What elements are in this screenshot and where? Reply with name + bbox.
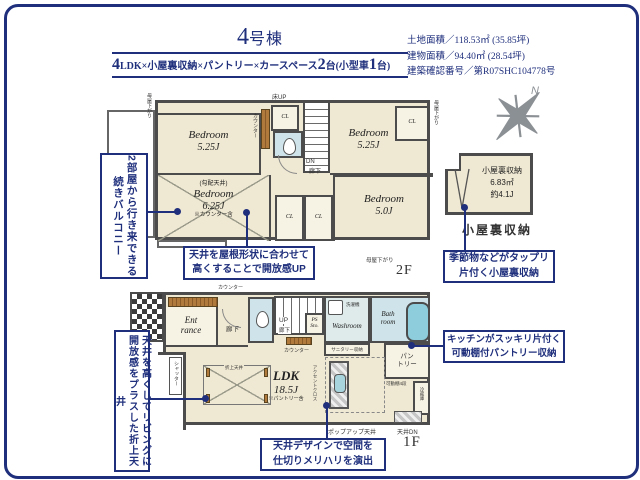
building-area: 建物面積／94.40㎡ (28.54坪) — [407, 50, 555, 66]
moya-sagari-se: 母屋下がり — [366, 256, 394, 264]
bedroom-se-size: 5.0J — [335, 206, 433, 218]
compass-north-label: N — [531, 85, 539, 97]
connector-coffered — [150, 398, 206, 400]
header: 4号棟 4LDK×小屋裏収納×パントリー×カースペース2台(小型車1台) — [112, 24, 408, 78]
coffered-ceiling-label: 折上天井 — [224, 365, 244, 371]
kitchen-counter — [329, 361, 349, 409]
callout-coffered-line2: 開放感をプラスした折上天井 — [113, 332, 139, 470]
stairs-counter — [286, 337, 312, 345]
property-info: 土地面積／118.53㎡ (35.85坪) 建物面積／94.40㎡ (28.54… — [407, 34, 555, 81]
stairs-1f-hall-label: 廊下 — [278, 326, 291, 334]
bedroom-nw-name: Bedroom — [158, 129, 259, 142]
pantry-shelf-label: 可動棚4段 — [386, 381, 407, 387]
door-arc-2f — [278, 155, 297, 174]
bathtub-icon — [406, 302, 430, 342]
callout-balcony-line2: 続きバルコニー — [110, 176, 124, 257]
callout-design-line2: 仕切りメリハリを演出 — [262, 455, 384, 470]
connector-attic-dot — [461, 204, 468, 211]
callout-ceiling-2f: 天井を屋根形状に合わせて 高くすることで開放感UP — [183, 246, 315, 280]
connector-design — [326, 406, 328, 438]
toilet-1f-bowl-icon — [256, 311, 269, 328]
kitchen-sink-icon — [334, 374, 346, 393]
washing-machine-icon — [328, 300, 343, 315]
compass-icon: N — [486, 82, 550, 148]
entrance-label-2: rance — [166, 325, 216, 335]
floor2-tag: 2F — [396, 263, 413, 279]
washer-label: 洗濯機 — [346, 302, 360, 308]
pantry: パン トリー — [384, 343, 430, 379]
entrance-label-1: Ent — [166, 315, 216, 325]
bathroom-label-1: Bath — [372, 310, 404, 318]
callout-ceiling-2f-line2: 高くすることで開放感UP — [185, 263, 313, 278]
callout-pantry-line2: 可動棚付パントリー収納 — [445, 347, 563, 361]
coffered-post — [264, 394, 268, 403]
floor1-tag: 1F — [403, 434, 421, 451]
callout-coffered: 天井を高くしてリビングに 開放感をプラスした折上天井 — [114, 330, 150, 472]
bedroom-se-name: Bedroom — [335, 193, 433, 206]
bedroom-sw-name: Bedroom — [158, 188, 269, 201]
callout-design: 天井デザインで空間を 仕切りメリハリを演出 — [260, 438, 386, 471]
coffered-post — [206, 368, 210, 377]
bedroom-nw: Bedroom 5.25J — [158, 113, 261, 175]
coffered-ceiling-box: 折上天井 — [203, 365, 271, 405]
page-title: 4号棟 — [112, 24, 408, 54]
connector-balcony-dot — [174, 208, 181, 215]
confirmation-number: 建築確認番号／第R07SHC104778号 — [407, 65, 555, 81]
callout-balcony-line1: 2部屋から行き来できる — [124, 155, 138, 277]
shutter-box: シャッター — [169, 357, 182, 395]
bedroom-ne-size: 5.25J — [330, 140, 407, 152]
attic-caption: 小屋裏収納 — [462, 221, 532, 238]
attic-area: 6.83㎡ — [474, 177, 530, 189]
pantry-label-2: トリー — [386, 361, 428, 369]
stairs-2f-dn-label: DN — [305, 159, 316, 165]
closet-2f-center: CL — [271, 105, 299, 131]
connector-ceiling-2f-dot — [243, 209, 250, 216]
sanitary-storage: サニタリー収納 — [324, 343, 370, 356]
connector-ceiling-2f — [246, 213, 248, 246]
toilet-2f — [273, 131, 303, 158]
callout-attic-line1: 季節物などがタップリ — [445, 252, 553, 267]
building-number: 4 — [237, 24, 249, 50]
callout-pantry: キッチンがスッキリ片付く 可動棚付パントリー収納 — [443, 330, 565, 363]
sto-label: Sto. — [307, 323, 322, 329]
bedroom-sw-ceiling-note: (勾配天井) — [158, 181, 269, 188]
connector-design-dot — [323, 402, 330, 409]
attic-plan: 小屋裏収納 6.83㎡ 約4.1J — [445, 153, 533, 215]
fridge-nook: 冷蔵庫 — [413, 381, 430, 415]
connector-coffered-dot — [202, 395, 209, 402]
back-door-step — [394, 411, 422, 423]
washroom: 洗濯機 Washroom — [324, 296, 370, 343]
callout-ceiling-2f-line1: 天井を屋根形状に合わせて — [185, 249, 313, 264]
bedroom-nw-size: 5.25J — [158, 142, 259, 154]
attic-name: 小屋裏収納 — [474, 165, 530, 177]
callout-design-line1: 天井デザインで空間を — [262, 440, 384, 455]
land-area: 土地面積／118.53㎡ (35.85坪) — [407, 34, 555, 50]
entrance: Ent rance — [166, 307, 218, 347]
connector-pantry-dot — [408, 342, 415, 349]
bathroom: Bath room — [370, 296, 430, 343]
bathroom-label-2: room — [372, 318, 404, 326]
attic-size: 約4.1J — [474, 189, 530, 201]
bedroom-se: Bedroom 5.0J — [333, 175, 433, 241]
closet-2f-center-label: CL — [273, 114, 297, 121]
moya-sagari-ne: 母屋下がり — [433, 100, 440, 125]
floorplan-flyer: 4号棟 4LDK×小屋裏収納×パントリー×カースペース2台(小型車1台) 土地面… — [0, 0, 640, 480]
callout-pantry-line1: キッチンがスッキリ片付く — [445, 333, 563, 347]
popup-ceiling-caption: ポップアップ天井 — [328, 427, 376, 436]
floor-up-label: 床UP — [272, 92, 286, 101]
callout-balcony: 2部屋から行き来できる 続きバルコニー — [100, 153, 148, 279]
callout-attic-line2: 片付く小屋裏収納 — [445, 267, 553, 282]
ps-storage: PS Sto. — [305, 313, 324, 335]
stairs-counter-label: カウンター — [284, 347, 309, 354]
floor2-plan: Bedroom 5.25J カウンター CL DN 廊下 Bedroom 5.2… — [155, 100, 430, 240]
coffered-post — [264, 368, 268, 377]
toilet-1f — [248, 297, 274, 343]
layout-subtitle: 4LDK×小屋裏収納×パントリー×カースペース2台(小型車1台) — [112, 54, 408, 78]
hallway-2f-label: 廊下 — [309, 166, 321, 175]
connector-attic — [464, 208, 466, 250]
accent-cloth-label: アクセントクロス — [312, 365, 318, 401]
floor1-plan: Ent rance 廊下 UP 廊下 カウンター PS Sto. 洗濯機 — [163, 292, 430, 425]
callout-coffered-line1: 天井を高くしてリビングに — [139, 335, 152, 467]
sanitary-storage-label: サニタリー収納 — [326, 347, 368, 353]
entrance-counter — [168, 297, 218, 307]
counter-2f-label: カウンター — [252, 113, 259, 138]
closet-2f-s2: CL — [304, 195, 333, 241]
toilet-2f-bowl-icon — [283, 138, 296, 155]
callout-attic: 季節物などがタップリ 片付く小屋裏収納 — [443, 250, 555, 283]
closet-2f-s2-label: CL — [306, 214, 331, 221]
closet-2f-ne: CL — [395, 106, 429, 141]
closet-2f-s1-label: CL — [277, 214, 302, 221]
shutter-label: シャッター — [173, 361, 180, 386]
stairs-1f-up-label: UP — [278, 317, 289, 324]
closet-2f-ne-label: CL — [397, 119, 427, 126]
counter-1f-top-label: カウンター — [218, 284, 243, 291]
connector-pantry — [412, 345, 443, 347]
fridge-label: 冷蔵庫 — [419, 387, 425, 401]
moya-sagari-nw: 母屋下がり — [146, 93, 153, 118]
pantry-label-1: パン — [386, 353, 428, 361]
closet-2f-s1: CL — [275, 195, 304, 241]
counter-2f — [261, 109, 270, 149]
washroom-label: Washroom — [326, 322, 368, 330]
